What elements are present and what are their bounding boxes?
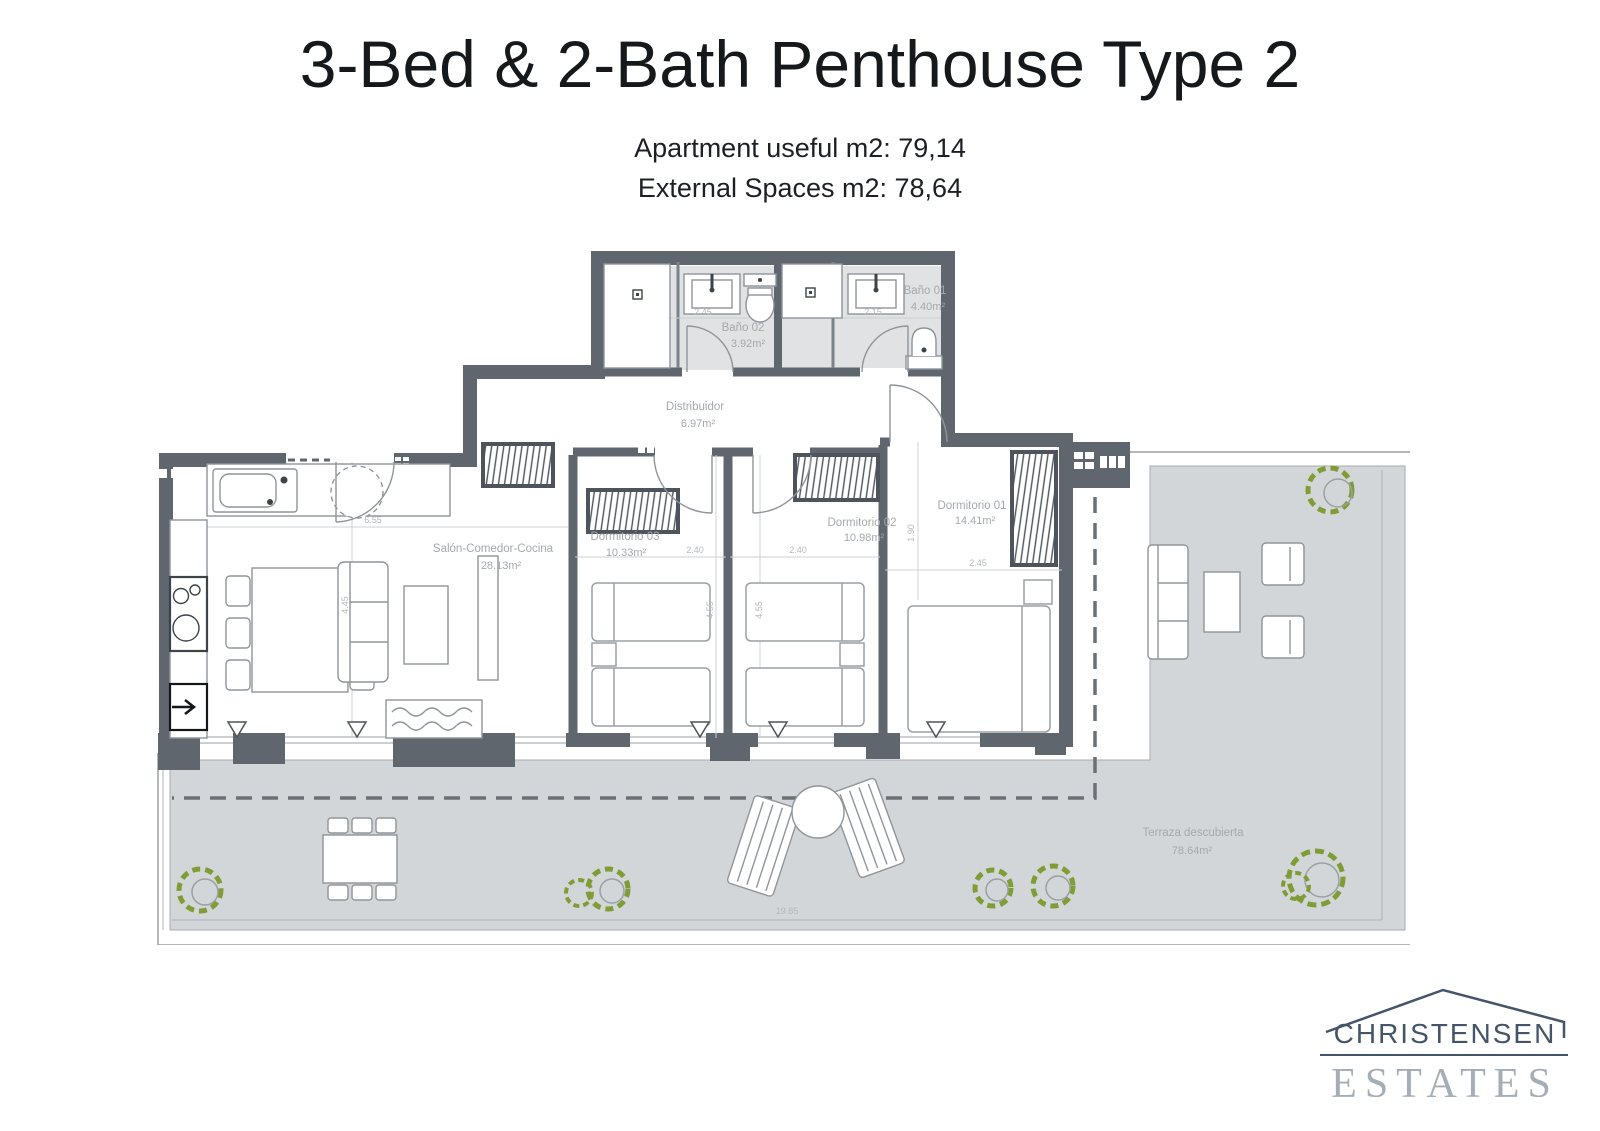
cooktop	[170, 577, 207, 651]
svg-text:6.55: 6.55	[364, 515, 382, 525]
shower-bath2	[604, 264, 670, 368]
svg-text:2.40: 2.40	[789, 545, 807, 555]
wardrobe-bed1	[1012, 452, 1056, 565]
coffee-table	[404, 586, 448, 664]
external-area-line: External Spaces m2: 78,64	[0, 168, 1600, 208]
sink-bath2	[684, 274, 740, 314]
svg-text:Dormitorio 02: Dormitorio 02	[827, 517, 896, 529]
brand-tagline: ESTATES	[1318, 1060, 1572, 1108]
svg-text:4.55: 4.55	[705, 601, 715, 619]
svg-text:Terraza descubierta: Terraza descubierta	[1143, 827, 1245, 839]
svg-text:78.64m²: 78.64m²	[1172, 845, 1213, 857]
tv-bench	[478, 556, 498, 680]
svg-text:Dormitorio 01: Dormitorio 01	[937, 500, 1006, 512]
hall-closet	[483, 444, 553, 486]
svg-text:2.40: 2.40	[686, 545, 704, 555]
brand-divider	[1320, 1054, 1568, 1056]
flyer-page: 3-Bed & 2-Bath Penthouse Type 2 Apartmen…	[0, 0, 1600, 1131]
svg-text:19.85: 19.85	[776, 906, 799, 916]
outdoor-sofa	[1148, 545, 1188, 659]
svg-text:3.92m²: 3.92m²	[731, 338, 766, 350]
svg-text:Baño 01: Baño 01	[904, 285, 947, 297]
svg-text:Dormitorio 03: Dormitorio 03	[590, 531, 659, 543]
svg-text:28.13m²: 28.13m²	[481, 560, 522, 572]
wardrobe-bed3	[588, 490, 678, 532]
svg-text:2.45: 2.45	[694, 307, 712, 317]
svg-text:Baño 02: Baño 02	[722, 322, 765, 334]
apartment-area-line: Apartment useful m2: 79,14	[0, 128, 1600, 168]
toilet-bath2	[744, 274, 776, 322]
svg-text:2.45: 2.45	[969, 558, 987, 568]
dining-table	[252, 568, 348, 692]
appliance-circle	[331, 466, 383, 518]
fridge	[170, 684, 207, 730]
svg-text:10.98m²: 10.98m²	[844, 532, 885, 544]
subtitle: Apartment useful m2: 79,14 External Spac…	[0, 128, 1600, 208]
svg-text:2.15: 2.15	[864, 307, 882, 317]
floor-plan-svg: Salón-Comedor-Cocina28.13m² Dormitorio 0…	[150, 240, 1410, 945]
svg-text:10.33m²: 10.33m²	[606, 547, 647, 559]
svg-text:Distribuidor: Distribuidor	[666, 401, 724, 413]
round-side-table	[792, 786, 844, 838]
brand-name: CHRISTENSEN	[1318, 1018, 1572, 1050]
svg-text:4.40m²: 4.40m²	[911, 301, 946, 313]
vent-block	[1066, 442, 1130, 488]
page-title: 3-Bed & 2-Bath Penthouse Type 2	[0, 26, 1600, 102]
svg-text:14.41m²: 14.41m²	[955, 515, 996, 527]
svg-text:4.55: 4.55	[754, 601, 764, 619]
sideboard	[386, 700, 482, 738]
svg-text:Salón-Comedor-Cocina: Salón-Comedor-Cocina	[433, 543, 554, 555]
floor-plan: Salón-Comedor-Cocina28.13m² Dormitorio 0…	[150, 240, 1410, 945]
svg-text:6.97m²: 6.97m²	[681, 418, 716, 430]
outdoor-dining	[323, 818, 397, 900]
sofa	[338, 562, 388, 682]
outdoor-coffee-table	[1204, 572, 1240, 632]
svg-text:4.45: 4.45	[340, 596, 350, 614]
wardrobe-bed2	[795, 455, 878, 500]
svg-text:1.90: 1.90	[906, 524, 916, 542]
brand-logo: CHRISTENSEN ESTATES	[1318, 980, 1572, 1115]
